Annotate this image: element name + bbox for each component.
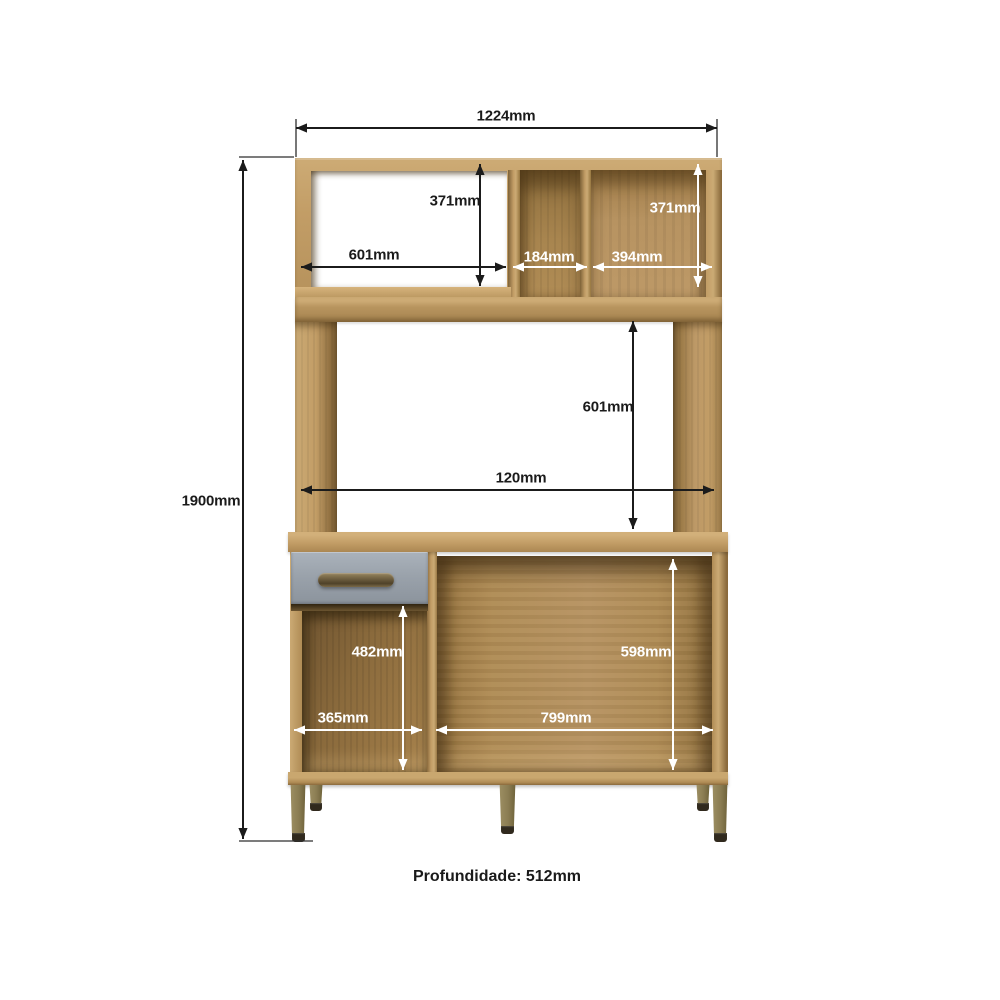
dimension-labels-layer: 1224mm371mm601mm184mm394mm371mm601mm120m… (0, 0, 1000, 1000)
leg-front-right (712, 785, 728, 833)
base-right-compartment (437, 556, 712, 772)
leg-foot (714, 833, 727, 842)
leg-middle (499, 785, 516, 826)
leg-foot (697, 803, 709, 811)
base-right-wall (712, 552, 728, 785)
leg-foot (310, 803, 322, 811)
leg-front-left (290, 785, 306, 833)
base-divider (427, 552, 437, 772)
drawer-handle (318, 573, 394, 587)
leg-back-right (696, 785, 710, 804)
hutch-bottom-shelf (295, 297, 722, 322)
hutch-middle-compartment (519, 170, 581, 297)
base-countertop (288, 532, 728, 552)
dimension-label-middle-opening-width: 120mm (496, 470, 547, 487)
drawer-gap-shadow (291, 604, 428, 611)
hutch-right-compartment (591, 170, 706, 297)
depth-label: Profundidade: 512mm (413, 868, 581, 886)
leg-back-left (309, 785, 323, 804)
dimension-lines-layer (0, 0, 1000, 1000)
hutch-divider-left (508, 170, 520, 297)
leg-foot (501, 826, 514, 834)
dimension-label-middle-opening-height: 601mm (583, 399, 634, 416)
hutch-right-wall (706, 170, 722, 297)
middle-left-column (295, 322, 337, 532)
furniture-dimension-diagram: 1224mm371mm601mm184mm394mm371mm601mm120m… (0, 0, 1000, 1000)
base-bottom-shelf (288, 772, 728, 785)
dimension-label-overall-height: 1900mm (182, 493, 241, 510)
middle-right-column (673, 322, 722, 532)
hutch-shelf-edge (295, 287, 511, 297)
hutch-divider-right (580, 170, 591, 297)
leg-foot (292, 833, 305, 842)
hutch-left-open-compartment (311, 171, 507, 287)
base-left-compartment (302, 611, 427, 772)
dimension-label-overall-width: 1224mm (477, 108, 536, 125)
